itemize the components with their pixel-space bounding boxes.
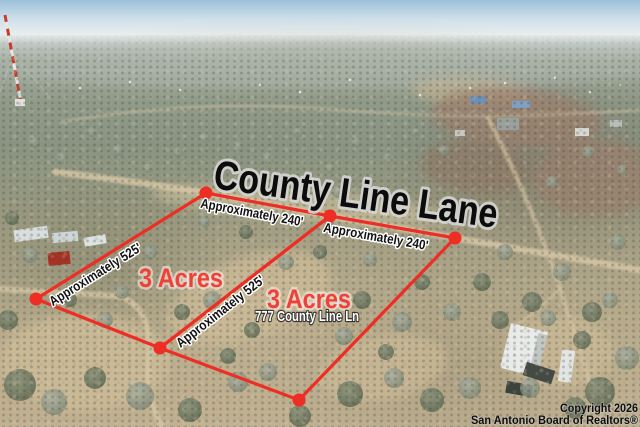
copyright-line-2: San Antonio Board of Realtors® <box>471 413 638 427</box>
annotation-overlay: County Line Lane Approximately 240' Appr… <box>0 0 640 427</box>
parcel-2-address-label: 777 County Line Ln <box>255 308 359 325</box>
measurement-525-left: Approximately 525' <box>46 240 144 309</box>
copyright-watermark: Copyright 2026 San Antonio Board of Real… <box>471 401 638 427</box>
street-name-title: County Line Lane <box>211 151 501 236</box>
aerial-listing-photo: County Line Lane Approximately 240' Appr… <box>0 0 640 427</box>
parcel-1-acreage-label: 3 Acres <box>139 263 223 293</box>
